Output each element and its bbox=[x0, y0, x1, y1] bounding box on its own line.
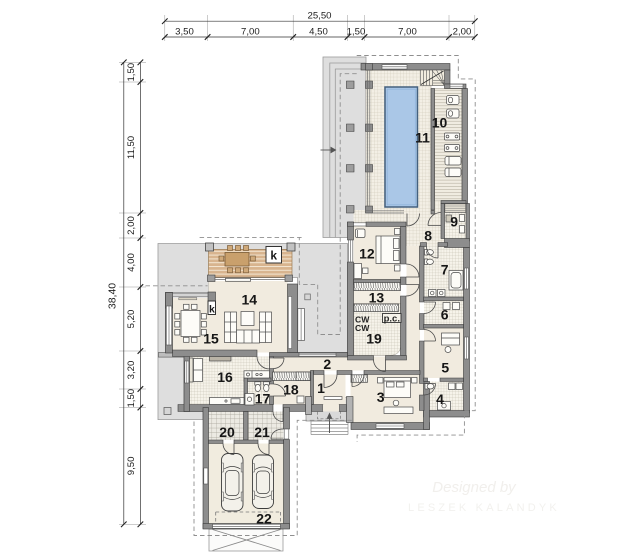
svg-text:14: 14 bbox=[242, 292, 258, 308]
svg-text:7,00: 7,00 bbox=[241, 26, 260, 37]
svg-text:38,40: 38,40 bbox=[107, 283, 119, 309]
svg-text:LESZEK KALANDYK: LESZEK KALANDYK bbox=[408, 502, 560, 514]
svg-text:3: 3 bbox=[377, 389, 385, 405]
svg-text:4: 4 bbox=[436, 391, 444, 407]
svg-text:15: 15 bbox=[203, 331, 219, 347]
svg-text:Designed by: Designed by bbox=[432, 479, 517, 496]
svg-text:16: 16 bbox=[217, 369, 233, 385]
svg-text:k: k bbox=[209, 303, 215, 315]
svg-text:18: 18 bbox=[283, 381, 299, 397]
svg-text:8: 8 bbox=[424, 227, 432, 243]
svg-text:4,50: 4,50 bbox=[309, 26, 328, 37]
svg-text:2,00: 2,00 bbox=[126, 216, 137, 235]
svg-text:5,20: 5,20 bbox=[126, 310, 137, 329]
svg-text:7: 7 bbox=[441, 261, 449, 277]
svg-text:1: 1 bbox=[317, 380, 325, 396]
svg-text:22: 22 bbox=[256, 511, 272, 527]
svg-text:6: 6 bbox=[441, 307, 449, 323]
svg-text:1,50: 1,50 bbox=[126, 389, 137, 408]
svg-text:17: 17 bbox=[255, 390, 271, 406]
svg-text:19: 19 bbox=[366, 331, 382, 347]
svg-text:10: 10 bbox=[432, 115, 448, 131]
svg-text:13: 13 bbox=[369, 289, 385, 305]
svg-text:21: 21 bbox=[254, 424, 270, 440]
svg-text:11,50: 11,50 bbox=[126, 136, 137, 159]
svg-text:9,50: 9,50 bbox=[126, 457, 137, 476]
svg-text:12: 12 bbox=[359, 245, 375, 261]
svg-text:3,20: 3,20 bbox=[126, 361, 137, 380]
svg-text:1,50: 1,50 bbox=[347, 26, 366, 37]
svg-text:4,00: 4,00 bbox=[126, 253, 137, 272]
svg-text:7,00: 7,00 bbox=[398, 26, 417, 37]
svg-text:CW: CW bbox=[355, 323, 370, 333]
svg-text:2,00: 2,00 bbox=[453, 26, 472, 37]
svg-text:20: 20 bbox=[219, 424, 235, 440]
svg-text:p.c.: p.c. bbox=[384, 313, 400, 324]
svg-text:11: 11 bbox=[415, 130, 430, 146]
svg-text:3,50: 3,50 bbox=[175, 26, 194, 37]
svg-text:25,50: 25,50 bbox=[307, 10, 331, 21]
svg-text:1,50: 1,50 bbox=[126, 63, 137, 82]
svg-text:k: k bbox=[270, 249, 277, 263]
svg-text:2: 2 bbox=[323, 356, 331, 372]
svg-text:5: 5 bbox=[441, 360, 449, 376]
svg-text:9: 9 bbox=[450, 213, 458, 229]
